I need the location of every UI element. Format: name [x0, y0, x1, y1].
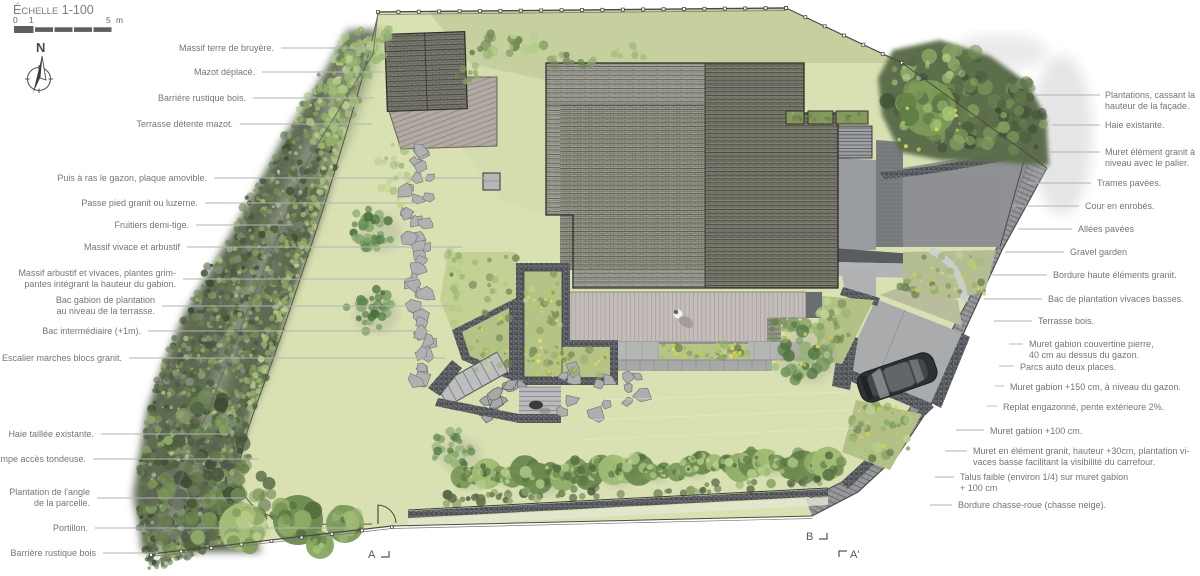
svg-text:Escalier marches blocs granit.: Escalier marches blocs granit. — [2, 353, 122, 363]
svg-text:Portillon.: Portillon. — [53, 523, 88, 533]
svg-text:Bac gabion de plantation: Bac gabion de plantation — [56, 295, 155, 305]
svg-text:Rampe accès tondeuse.: Rampe accès tondeuse. — [0, 454, 86, 464]
svg-text:m: m — [116, 15, 123, 25]
svg-text:Cour en enrobés.: Cour en enrobés. — [1085, 201, 1155, 211]
svg-text:Terrasse détente mazot.: Terrasse détente mazot. — [136, 119, 233, 129]
svg-text:A: A — [368, 549, 376, 561]
svg-text:Muret gabion +150 cm, à niveau: Muret gabion +150 cm, à niveau du gazon. — [1010, 382, 1181, 392]
svg-text:Bac intermédiaire (+1m).: Bac intermédiaire (+1m). — [42, 326, 141, 336]
svg-text:pantes intégrant la hauteur du: pantes intégrant la hauteur du gabion. — [24, 279, 176, 289]
svg-text:au niveau de la terrasse.: au niveau de la terrasse. — [56, 306, 155, 316]
svg-text:Parcs auto deux places.: Parcs auto deux places. — [1020, 362, 1116, 372]
svg-text:A': A' — [850, 549, 859, 561]
svg-text:vaces basse facilitant la visi: vaces basse facilitant la visibilité du … — [973, 457, 1155, 467]
svg-text:+ 100 cm: + 100 cm — [960, 483, 997, 493]
svg-text:Haie existante.: Haie existante. — [1105, 120, 1165, 130]
svg-text:Plantation de l'angle: Plantation de l'angle — [9, 487, 90, 497]
svg-text:Haie taillée existante.: Haie taillée existante. — [8, 429, 94, 439]
svg-text:Fruitiers demi-tige.: Fruitiers demi-tige. — [114, 220, 189, 230]
svg-text:Muret gabion +100 cm.: Muret gabion +100 cm. — [990, 426, 1082, 436]
svg-text:Gravel garden: Gravel garden — [1070, 247, 1127, 257]
svg-text:0: 0 — [13, 15, 18, 25]
svg-text:Plantations, cassant la: Plantations, cassant la — [1105, 90, 1195, 100]
svg-text:Massif terre de bruyère.: Massif terre de bruyère. — [179, 43, 274, 53]
svg-text:Bordure chasse-roue (chasse ne: Bordure chasse-roue (chasse neige). — [958, 500, 1106, 510]
svg-text:Massif vivace et arbustif: Massif vivace et arbustif — [84, 242, 181, 252]
svg-text:Muret élément granit à: Muret élément granit à — [1105, 147, 1195, 157]
svg-text:5: 5 — [106, 15, 111, 25]
svg-text:Talus faible (environ 1/4) sur: Talus faible (environ 1/4) sur muret gab… — [960, 472, 1128, 482]
svg-text:Muret en élément granit, haute: Muret en élément granit, hauteur +30cm, … — [973, 446, 1189, 456]
svg-text:de la parcelle.: de la parcelle. — [34, 498, 90, 508]
svg-text:Terrasse bois.: Terrasse bois. — [1038, 316, 1094, 326]
svg-text:Replat engazonné, pente extéri: Replat engazonné, pente extérieure 2%. — [1003, 402, 1164, 412]
svg-text:40 cm au dessus du gazon.: 40 cm au dessus du gazon. — [1029, 350, 1139, 360]
svg-text:Muret gabion couvertine pierre: Muret gabion couvertine pierre, — [1029, 339, 1154, 349]
svg-text:Puis à ras le gazon, plaque am: Puis à ras le gazon, plaque amovible. — [57, 173, 207, 183]
svg-text:Bac de plantation vivaces bass: Bac de plantation vivaces basses. — [1048, 294, 1184, 304]
svg-text:Allées pavées: Allées pavées — [1078, 224, 1135, 234]
svg-text:Mazot déplacé.: Mazot déplacé. — [194, 67, 255, 77]
svg-text:Massif arbustif et vivaces, pl: Massif arbustif et vivaces, plantes grim… — [18, 268, 176, 278]
svg-text:Barrière rustique bois.: Barrière rustique bois. — [158, 93, 246, 103]
svg-text:Barrière rustique bois: Barrière rustique bois — [10, 548, 96, 558]
svg-text:niveau avec le palier.: niveau avec le palier. — [1105, 158, 1189, 168]
svg-text:Bordure haute éléments granit.: Bordure haute éléments granit. — [1053, 270, 1177, 280]
svg-text:hauteur de la façade.: hauteur de la façade. — [1105, 101, 1190, 111]
svg-text:B: B — [806, 531, 813, 543]
svg-text:1: 1 — [29, 15, 34, 25]
svg-text:Trames pavées.: Trames pavées. — [1097, 178, 1161, 188]
svg-text:N: N — [36, 40, 45, 55]
svg-text:Passe pied granit ou luzerne.: Passe pied granit ou luzerne. — [81, 198, 198, 208]
